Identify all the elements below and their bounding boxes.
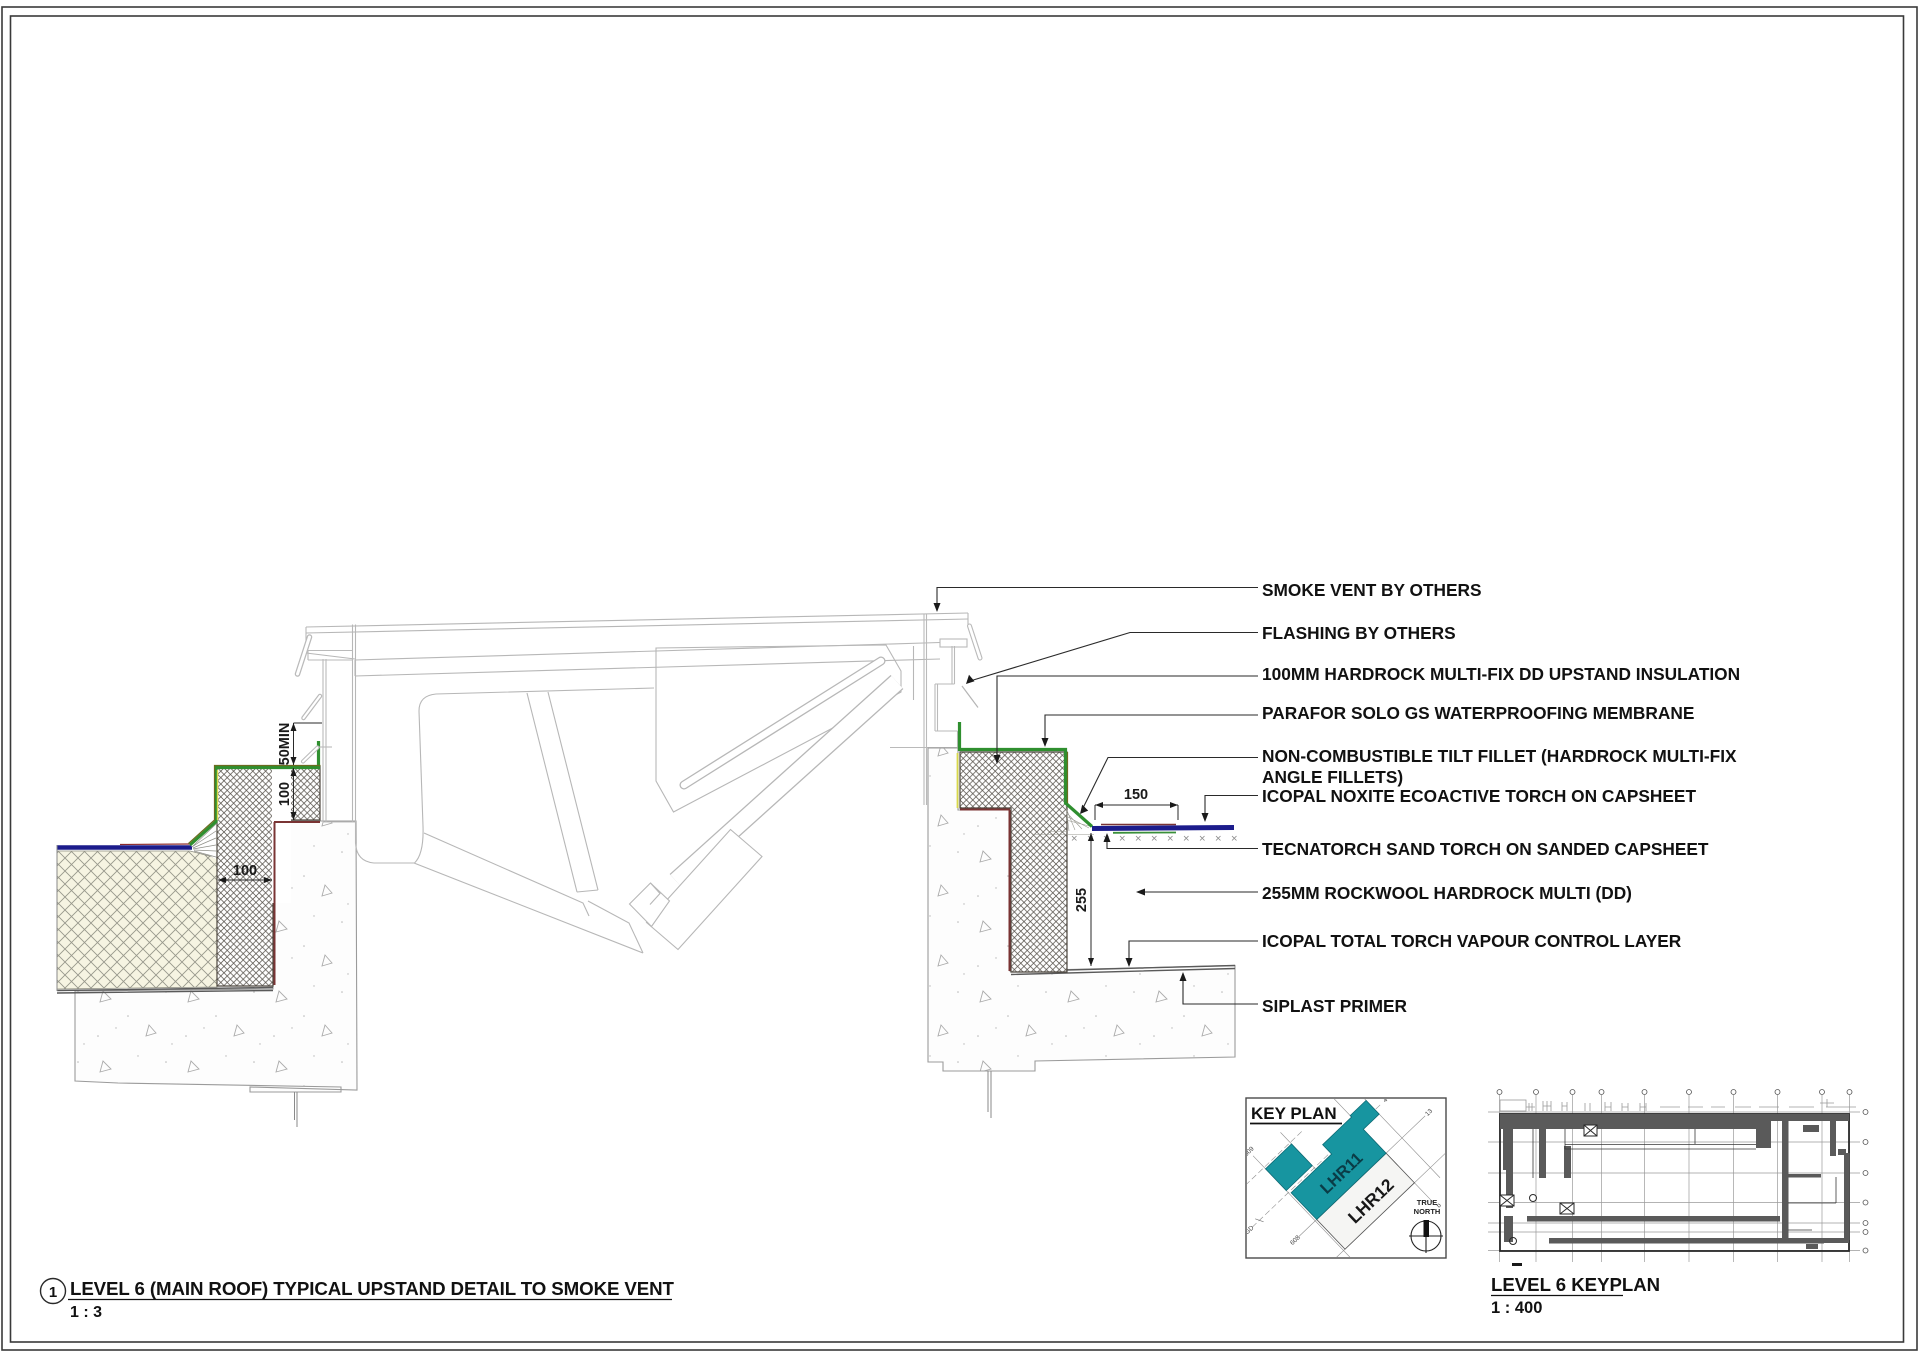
svg-text:LEVEL 6 (MAIN ROOF) TYPICAL UP: LEVEL 6 (MAIN ROOF) TYPICAL UPSTAND DETA…: [70, 1278, 675, 1299]
svg-text:NORTH: NORTH: [1414, 1207, 1441, 1216]
svg-text:PARAFOR SOLO GS WATERPROOFING: PARAFOR SOLO GS WATERPROOFING MEMBRANE: [1262, 703, 1694, 723]
svg-text:TRUE: TRUE: [1417, 1198, 1437, 1207]
svg-text:50MIN: 50MIN: [277, 723, 293, 766]
svg-text:FLASHING BY OTHERS: FLASHING BY OTHERS: [1262, 623, 1456, 643]
svg-text:TECNATORCH SAND TORCH ON SANDE: TECNATORCH SAND TORCH ON SANDED CAPSHEET: [1262, 839, 1709, 859]
svg-text:100MM HARDROCK MULTI-FIX DD UP: 100MM HARDROCK MULTI-FIX DD UPSTAND INSU…: [1262, 664, 1740, 684]
svg-text:SMOKE VENT BY OTHERS: SMOKE VENT BY OTHERS: [1262, 580, 1482, 600]
svg-text:100: 100: [277, 782, 293, 806]
svg-text:ANGLE FILLETS): ANGLE FILLETS): [1262, 767, 1403, 787]
svg-text:150: 150: [1124, 787, 1148, 803]
svg-text:100: 100: [233, 863, 257, 879]
svg-text:1: 1: [49, 1284, 57, 1301]
svg-text:1 : 400: 1 : 400: [1491, 1299, 1542, 1317]
svg-text:NON-COMBUSTIBLE TILT FILLET (H: NON-COMBUSTIBLE TILT FILLET (HARDROCK MU…: [1262, 746, 1737, 766]
svg-text:1 : 3: 1 : 3: [70, 1304, 102, 1321]
svg-text:SIPLAST PRIMER: SIPLAST PRIMER: [1262, 996, 1408, 1016]
svg-text:255: 255: [1074, 888, 1090, 912]
svg-text:KEY PLAN: KEY PLAN: [1251, 1104, 1337, 1123]
svg-text:255MM ROCKWOOL HARDROCK MULTI: 255MM ROCKWOOL HARDROCK MULTI (DD): [1262, 883, 1632, 903]
svg-text:ICOPAL TOTAL TORCH VAPOUR CONT: ICOPAL TOTAL TORCH VAPOUR CONTROL LAYER: [1262, 931, 1682, 951]
svg-text:LEVEL 6 KEYPLAN: LEVEL 6 KEYPLAN: [1491, 1274, 1660, 1295]
svg-text:ICOPAL NOXITE ECOACTIVE TORCH: ICOPAL NOXITE ECOACTIVE TORCH ON CAPSHEE…: [1262, 786, 1696, 806]
